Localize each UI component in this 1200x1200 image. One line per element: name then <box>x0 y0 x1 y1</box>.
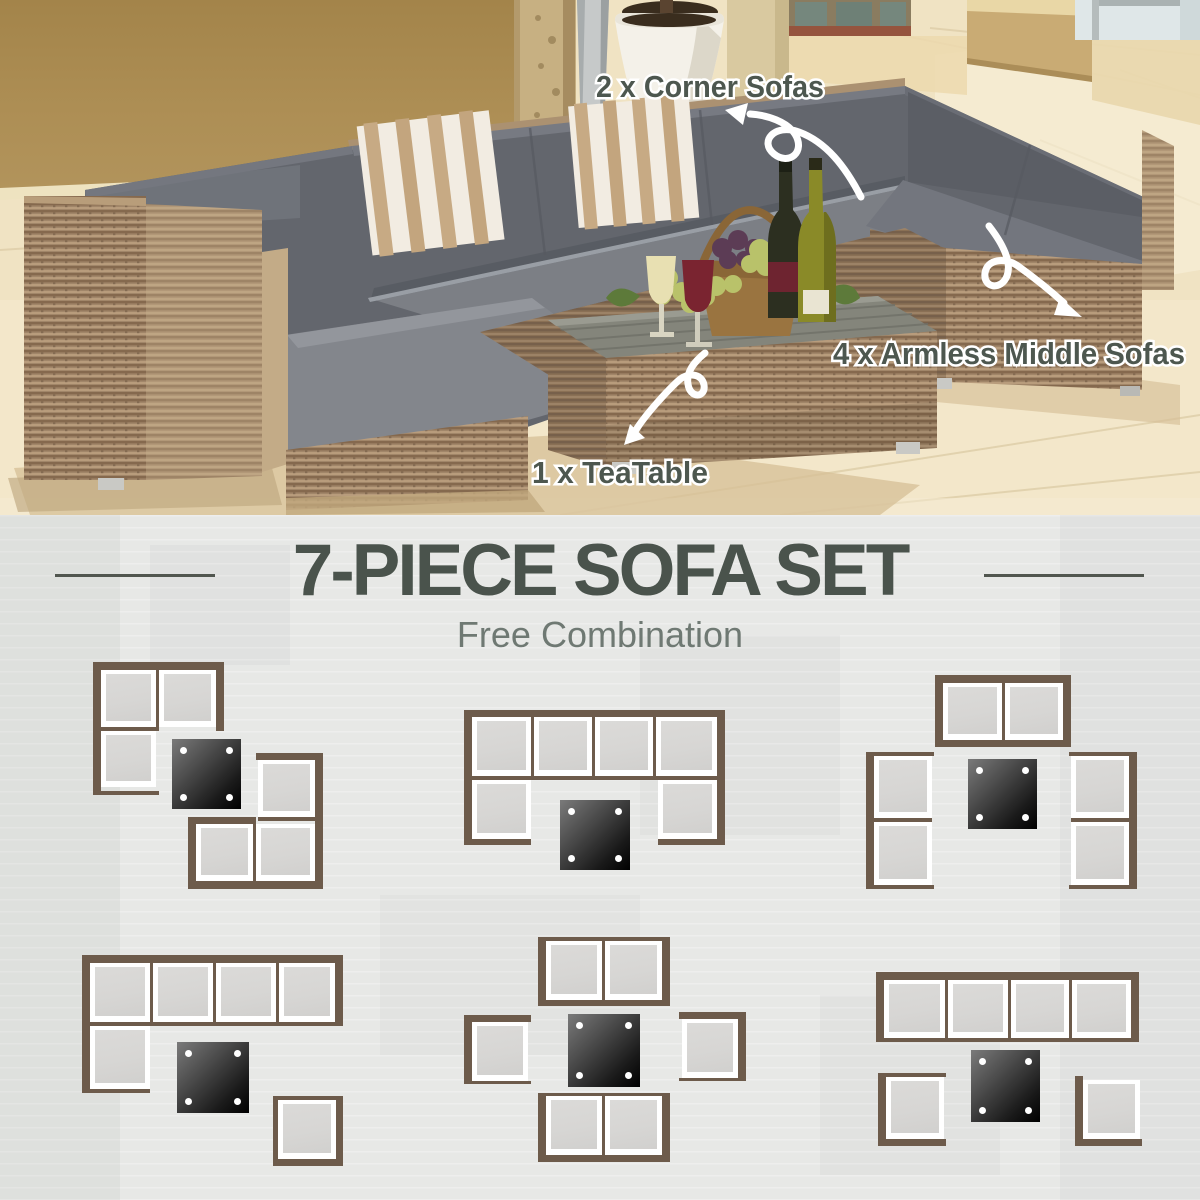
svg-text:1 x TeaTable: 1 x TeaTable <box>532 455 708 490</box>
svg-text:4 x Armless Middle Sofas: 4 x Armless Middle Sofas <box>833 336 1185 371</box>
svg-text:2 x Corner Sofas: 2 x Corner Sofas <box>596 69 824 104</box>
